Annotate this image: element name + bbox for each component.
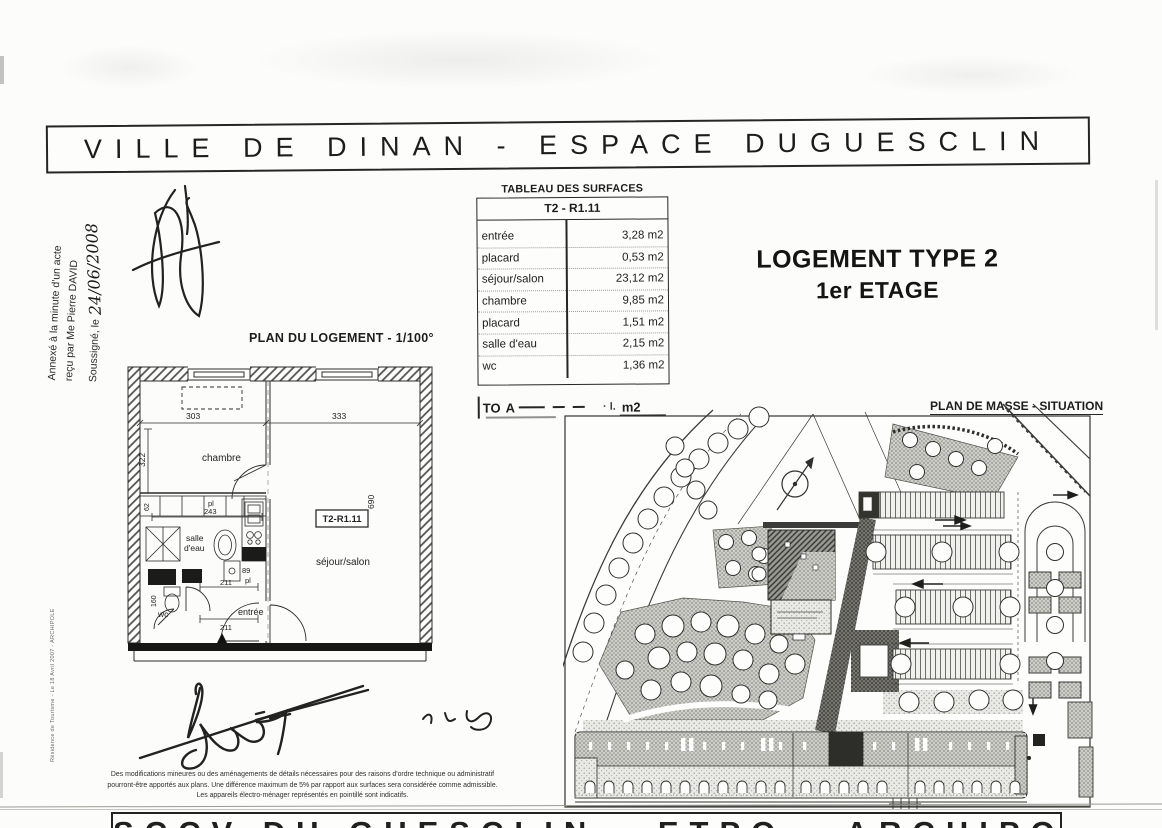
dim-690: 690 [366, 495, 376, 509]
scan-smudge [250, 30, 670, 90]
scan-smudge [60, 45, 200, 90]
plan-divider-wall [266, 381, 270, 643]
footer-banner-text: SCCV DU GUESCLIN - ETPO - ARCHIPOLE [113, 817, 1060, 828]
signature-scribble-3 [415, 693, 515, 743]
dim-62: 62 [144, 503, 151, 511]
surfaces-table-body: entrée3,28 m2 placard0,53 m2 séjour/salo… [477, 219, 668, 384]
table-row: placard0,53 m2 [478, 246, 668, 269]
surfaces-table-unit-header: T2 - R1.11 [477, 197, 667, 220]
plan-doors [154, 465, 306, 641]
redaction-dash [519, 406, 545, 408]
building-arches [585, 781, 1020, 793]
table-row: séjour/salon23,12 m2 [478, 268, 668, 291]
logement-heading: LOGEMENT TYPE 2 1er ETAGE [755, 244, 1000, 304]
dim-303: 303 [186, 411, 200, 421]
scan-edge-mark [1155, 180, 1158, 330]
room-label-wc: wc [157, 609, 169, 619]
horizontal-rule-2 [0, 809, 1162, 810]
dim-322: 322 [137, 453, 147, 467]
dim-160: 160 [151, 595, 158, 607]
room-label-sejour: séjour/salon [316, 557, 370, 568]
logement-floor: 1er ETAGE [755, 276, 1000, 304]
plan-bottom-wall [128, 643, 432, 651]
surfaces-table: TABLEAU DES SURFACES T2 - R1.11 entrée3,… [476, 182, 670, 418]
entry-triangle [217, 633, 227, 643]
unit-tag: T2-R1.11 [322, 514, 362, 525]
table-row: chambre9,85 m2 [478, 289, 668, 312]
dim-243: 243 [204, 507, 217, 516]
table-row: placard1,51 m2 [478, 311, 668, 334]
placard-dashed [182, 387, 242, 409]
dim-pl2: pl [245, 576, 251, 585]
redaction-dash [486, 416, 556, 418]
edge-print-note: Résidence de Tourisme - Le 18 Avril 2007… [50, 572, 56, 762]
dim-211b: 211 [220, 623, 232, 632]
floor-plan-title: PLAN DU LOGEMENT - 1/100° [249, 331, 434, 345]
table-row: wc1,36 m2 [478, 354, 668, 377]
handwritten-date: 24/06/2008 [78, 222, 108, 315]
room-label-chambre: chambre [202, 453, 241, 464]
surfaces-table-box: T2 - R1.11 entrée3,28 m2 placard0,53 m2 … [476, 196, 669, 385]
logement-type: LOGEMENT TYPE 2 [755, 244, 1000, 274]
table-row: salle d'eau2,15 m2 [478, 332, 668, 355]
dim-89: 89 [242, 566, 250, 575]
plan-walls [128, 367, 432, 643]
title-banner-text: VILLE DE DINAN - ESPACE DUGUESCLIN [84, 125, 1052, 164]
title-banner: VILLE DE DINAN - ESPACE DUGUESCLIN [46, 116, 1090, 173]
table-row: entrée3,28 m2 [477, 225, 667, 247]
site-plan-drawing [563, 402, 1100, 811]
floor-plan-drawing: 303 333 322 690 chambre salle d'eau pl 2… [124, 349, 436, 663]
dim-333: 333 [332, 411, 346, 421]
scan-edge-mark [0, 752, 3, 798]
room-label-entree: entrée [238, 607, 264, 617]
surfaces-table-title: TABLEAU DES SURFACES [476, 182, 668, 195]
scan-edge-mark [0, 56, 4, 84]
footer-note: Des modifications mineures ou des aménag… [75, 770, 530, 802]
room-label-salle-eau: salle [186, 533, 204, 543]
notary-annotation: Annexé à la minute d'un acte reçu par Me… [44, 182, 123, 383]
scan-smudge [860, 55, 1080, 95]
svg-text:d'eau: d'eau [184, 543, 205, 553]
signature-scribble-1 [115, 178, 230, 338]
dim-211a: 211 [220, 578, 232, 587]
